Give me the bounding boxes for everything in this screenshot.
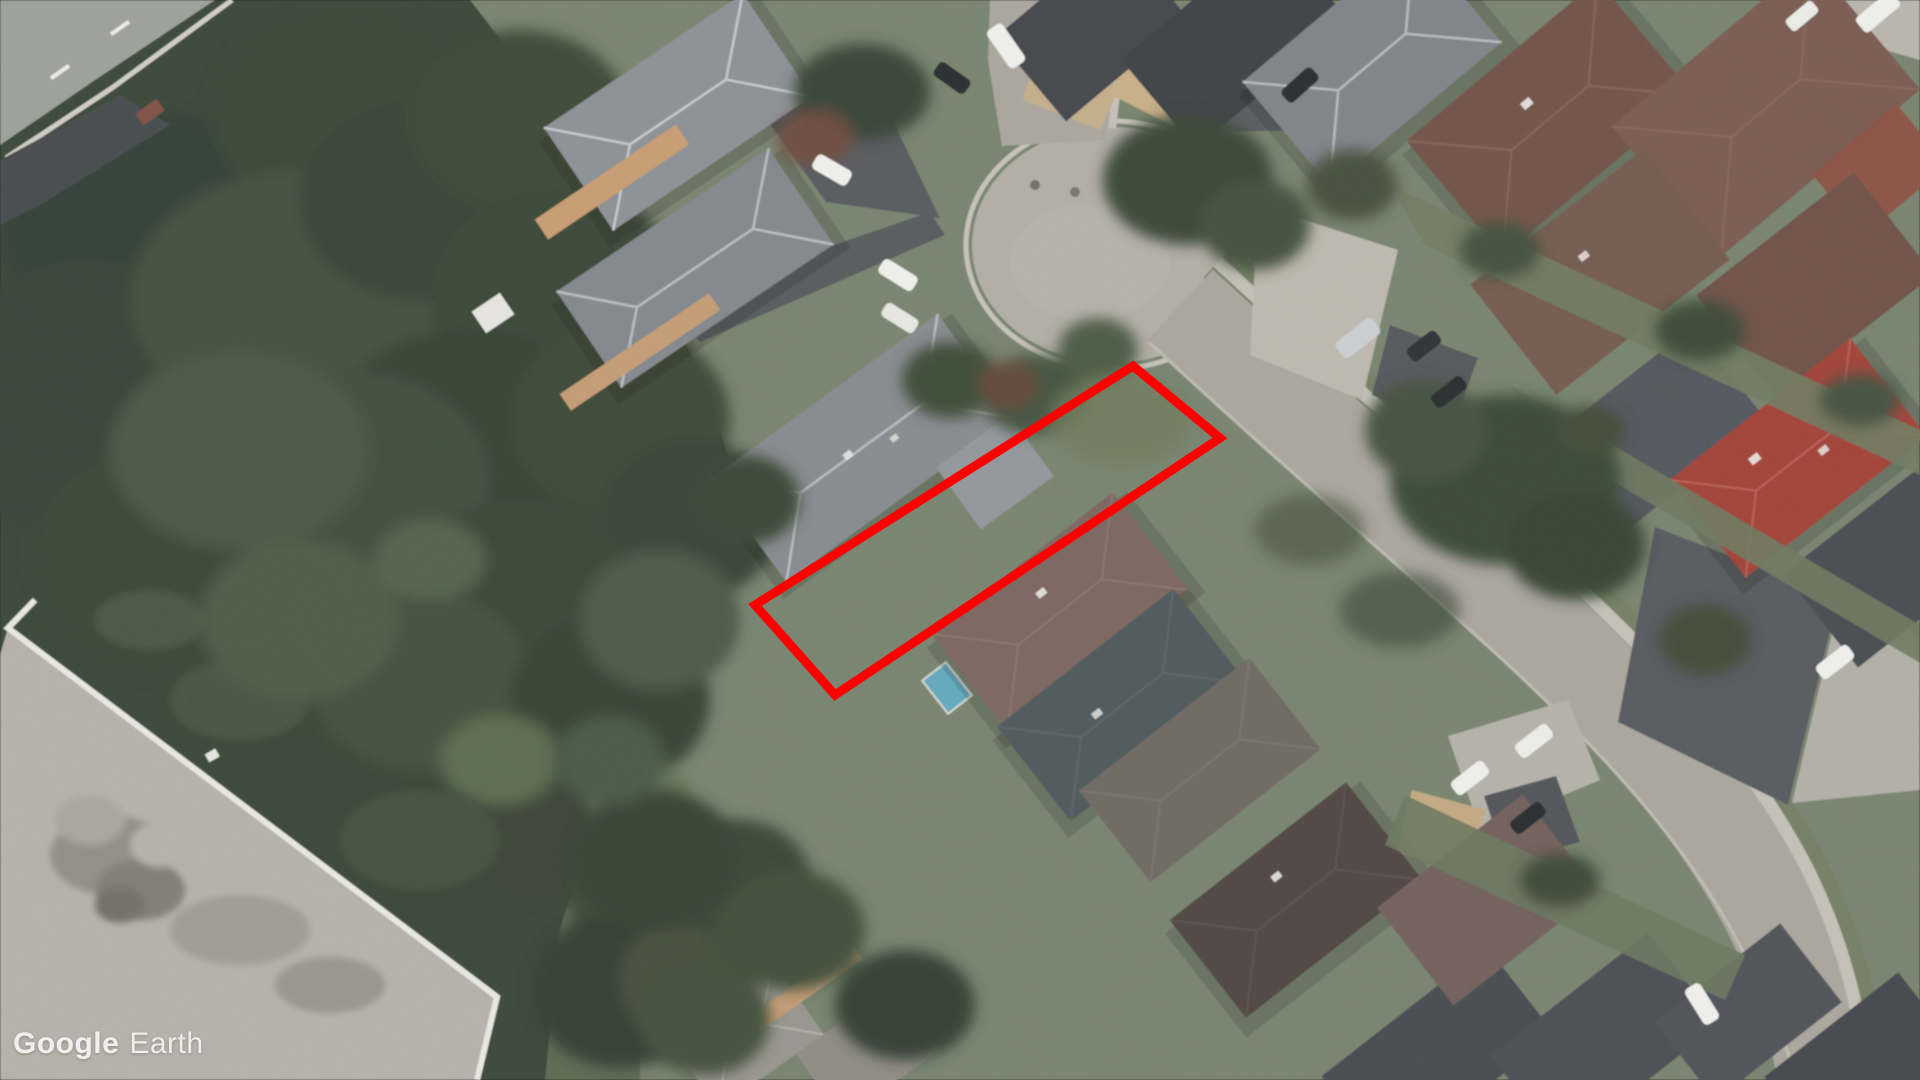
watermark-earth: Earth xyxy=(129,1029,203,1059)
satellite-imagery[interactable] xyxy=(0,0,1920,1080)
photo-grain xyxy=(0,0,1920,1080)
google-earth-viewport[interactable]: Google Earth xyxy=(0,0,1920,1080)
google-earth-watermark: Google Earth xyxy=(13,1029,204,1059)
terrain xyxy=(0,0,1920,1080)
watermark-google: Google xyxy=(13,1029,119,1059)
